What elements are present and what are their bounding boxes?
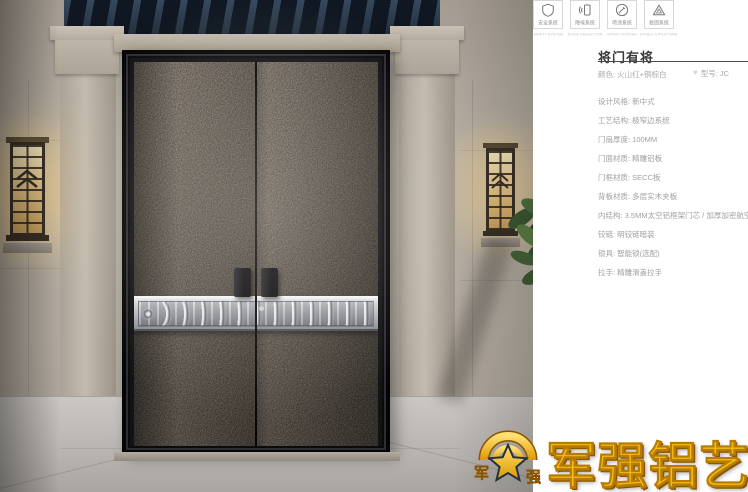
feature-caption: SAFETY SYSTEM: [533, 33, 564, 37]
spec-line: 设计风格: 新中式: [598, 92, 748, 111]
shield-icon: [541, 3, 555, 17]
feature-noise: 降噪系统 NOISE REDUCTION: [570, 0, 600, 38]
spec-line: 门框材质: SECC板: [598, 168, 748, 187]
star-icon: [490, 445, 527, 480]
feature-stability: 稳固系统 STABLE STRUCTURE: [644, 0, 674, 38]
brand-emblem: 军 强: [470, 418, 546, 492]
feature-caption: NOISE REDUCTION: [568, 33, 603, 37]
soundproof-door-icon: [578, 3, 592, 17]
feature-box: 喷涂系统: [607, 0, 637, 29]
stability-triangle-icon: [652, 3, 666, 17]
spec-line: 门面材质: 精雕铝板: [598, 149, 748, 168]
feature-box: 降噪系统: [570, 0, 600, 29]
feature-label: 喷涂系统: [612, 18, 632, 25]
feature-caption: SPRAY COATING: [607, 33, 637, 37]
model-label: 型号: JC: [701, 68, 729, 79]
spec-line: 锁具: 智能锁(选配): [598, 244, 748, 263]
scene-lighting: [0, 0, 533, 492]
emblem-char-left: 军: [474, 465, 489, 482]
spec-panel: 将门有将 颜色: 火山红+铜棕白 ♥型号: JC 设计风格: 新中式工艺结构: …: [533, 0, 748, 492]
brand-name: 军强铝艺: [546, 426, 748, 492]
feature-coating: 喷涂系统 SPRAY COATING: [607, 0, 637, 38]
product-sheet: 将门有将 颜色: 火山红+铜棕白 ♥型号: JC 设计风格: 新中式工艺结构: …: [0, 0, 748, 492]
spec-line: 门扇厚度: 100MM: [598, 130, 748, 149]
feature-caption: STABLE STRUCTURE: [640, 33, 678, 37]
feature-safety: 安全系统 SAFETY SYSTEM: [533, 0, 563, 38]
color-label: 颜色: 火山红+铜棕白: [598, 69, 667, 80]
feature-row: 安全系统 SAFETY SYSTEM 降噪系统 NOISE REDUCTION: [533, 0, 693, 38]
title-divider: [598, 61, 748, 62]
spray-pen-icon: [615, 3, 629, 17]
feature-label: 稳固系统: [649, 18, 669, 25]
product-title: 将门有将: [598, 47, 654, 66]
model-row: ♥型号: JC: [693, 68, 701, 77]
spec-list: 设计风格: 新中式工艺结构: 极窄边系统门扇厚度: 100MM门面材质: 精雕铝…: [598, 92, 748, 282]
feature-box: 安全系统: [533, 0, 563, 29]
spec-line: 背板材质: 多层实木夹板: [598, 187, 748, 206]
feature-label: 降噪系统: [575, 18, 595, 25]
emblem-char-right: 强: [526, 469, 541, 486]
door-photo: [0, 0, 533, 492]
feature-label: 安全系统: [538, 18, 558, 25]
spec-line: 工艺结构: 极窄边系统: [598, 111, 748, 130]
spec-line: 铰链: 明铰链暗装: [598, 225, 748, 244]
heart-icon: ♥: [693, 68, 698, 77]
feature-box: 稳固系统: [644, 0, 674, 29]
spec-line: 内结构: 3.5MM太空铝框架门芯 / 加厚加密航空铝板: [598, 206, 748, 225]
spec-line: 拉手: 精雕滑盖拉手: [598, 263, 748, 282]
